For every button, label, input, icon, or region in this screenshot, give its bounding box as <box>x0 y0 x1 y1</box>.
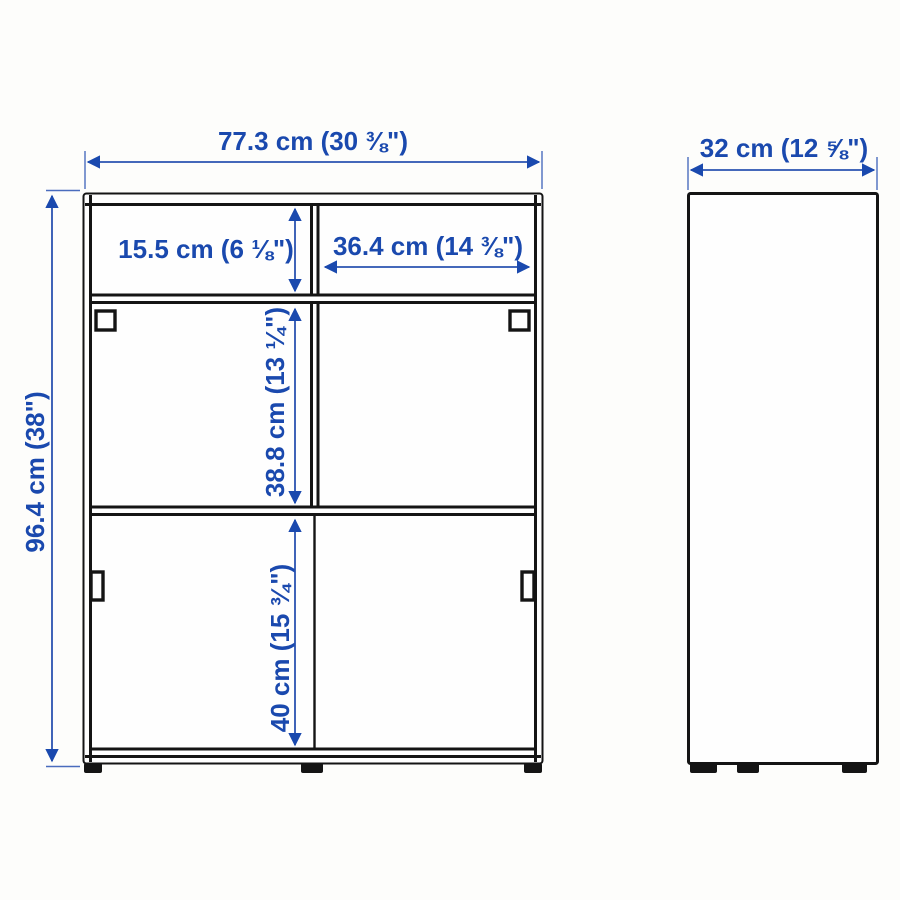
bottom-left-door-handle <box>91 572 103 600</box>
front-center-foot <box>301 763 323 773</box>
diagram-canvas: 77.3 cm (30 ⅜") 96.4 cm (38") 15.5 cm (6… <box>0 0 900 900</box>
side-left-foot <box>690 763 717 773</box>
front-left-foot <box>84 763 102 773</box>
dimension-middle-compartment-height: 38.8 cm (13 ¼") <box>260 307 295 503</box>
front-view <box>84 194 543 774</box>
side-cabinet-outline <box>689 194 878 764</box>
dimension-depth: 32 cm (12 ⅝") <box>688 133 877 190</box>
side-view <box>689 194 878 774</box>
dimension-diagram: 77.3 cm (30 ⅜") 96.4 cm (38") 15.5 cm (6… <box>0 0 900 900</box>
top-compartment-height-label: 15.5 cm (6 ⅛") <box>118 234 294 264</box>
overall-width-label: 77.3 cm (30 ⅜") <box>218 126 408 156</box>
depth-label: 32 cm (12 ⅝") <box>700 133 868 163</box>
bottom-right-door-handle <box>522 572 534 600</box>
front-right-foot <box>524 763 542 773</box>
side-center-foot <box>737 763 759 773</box>
middle-left-door-handle <box>96 311 115 330</box>
middle-compartment-height-label: 38.8 cm (13 ¼") <box>260 307 290 497</box>
dimension-overall-width: 77.3 cm (30 ⅜") <box>85 126 542 189</box>
top-compartment-width-label: 36.4 cm (14 ⅜") <box>333 231 523 261</box>
dimension-overall-height: 96.4 cm (38") <box>20 191 80 767</box>
side-right-foot <box>842 763 867 773</box>
bottom-compartment-height-label: 40 cm (15 ¾") <box>265 564 295 732</box>
overall-height-label: 96.4 cm (38") <box>20 391 50 552</box>
middle-right-door-handle <box>510 311 529 330</box>
